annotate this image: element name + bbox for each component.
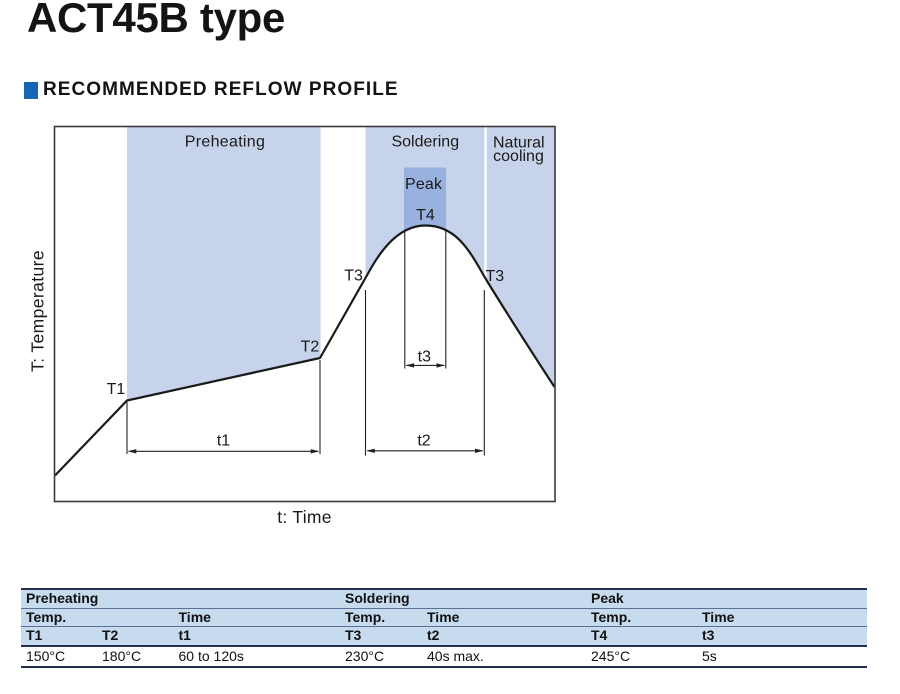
svg-text:T3: T3 xyxy=(344,268,363,285)
svg-text:Peak: Peak xyxy=(405,176,443,193)
svg-text:T3: T3 xyxy=(485,268,504,285)
svg-text:T1: T1 xyxy=(107,381,126,398)
svg-text:cooling: cooling xyxy=(493,148,544,165)
svg-text:Soldering: Soldering xyxy=(391,134,459,151)
svg-text:t2: t2 xyxy=(417,433,430,450)
svg-text:T: Temperature: T: Temperature xyxy=(28,250,48,372)
svg-text:t: Time: t: Time xyxy=(277,507,332,527)
svg-text:T2: T2 xyxy=(301,339,320,356)
svg-text:t1: t1 xyxy=(217,433,230,450)
svg-text:T4: T4 xyxy=(416,207,435,224)
svg-text:Preheating: Preheating xyxy=(185,134,265,151)
svg-text:t3: t3 xyxy=(418,349,431,366)
